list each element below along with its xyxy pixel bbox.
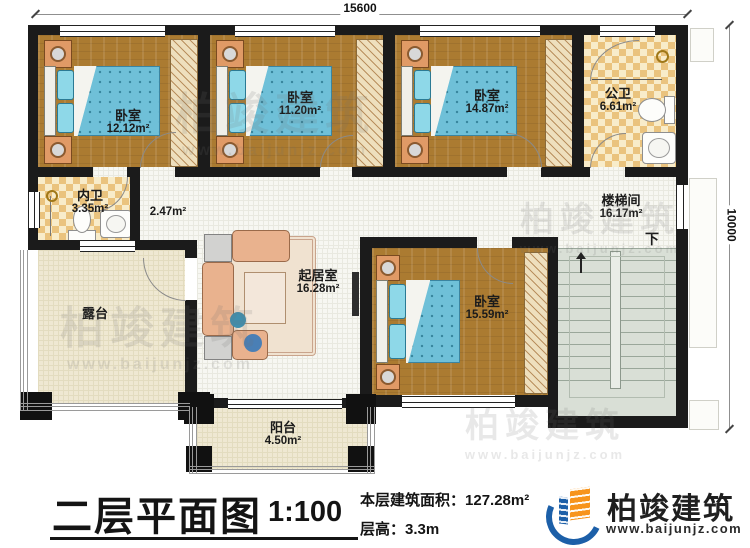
room-area: 6.61m² [600,101,636,115]
bed [376,280,460,363]
room-name: 阳台 [265,420,301,435]
nightstand [376,364,400,390]
towel-pole [50,196,51,236]
wardrobe [524,252,548,394]
wall-segment [352,167,507,177]
coffee-table [244,272,286,324]
window [235,25,335,37]
bed-pillow [57,70,74,100]
bed-sheet [406,280,430,363]
wall-segment [515,395,558,407]
stairs-down-label: 下 [645,229,659,249]
room-area: 15.59m² [466,309,509,323]
stair-arrow-head [576,252,586,259]
room-area: 3.35m² [72,203,108,217]
wall-segment [383,25,395,177]
nightstand [376,255,400,281]
room-name: 卧室 [279,90,321,105]
nightstand [44,136,72,164]
bed-sheet [74,66,98,136]
wall-segment [572,25,584,173]
exterior-box [690,28,714,62]
room-name: 公卫 [600,86,636,101]
room-area: 2.47m² [150,206,186,220]
nightstand [44,40,72,68]
wardrobe [356,39,384,167]
room-label-bedroom1: 卧室 12.12m² [107,108,150,137]
watermark-url: www.baijunjz.com [465,447,625,462]
wall-segment [127,167,140,177]
wall-segment [335,25,420,35]
wall-segment [360,237,477,248]
room-area: 16.28m² [297,283,340,297]
room-area: 12.12m² [107,123,150,137]
room-name: 内卫 [72,188,108,203]
wall-segment [130,177,140,245]
window [402,396,515,408]
plant [244,334,262,352]
toilet-bowl [638,98,666,122]
room-label-bedroom2: 卧室 11.20m² [279,90,321,119]
plan-scale: 1:100 [268,496,342,529]
wall-segment [540,25,600,35]
terrace-railing [20,403,190,411]
room-label-terrace: 露台 [82,306,108,321]
bed-headboard [44,66,56,136]
nightstand [401,40,429,68]
floor-area-line: 本层建筑面积：127.28m² [360,489,529,510]
sofa [202,262,234,336]
tv [352,272,359,316]
stair-walkline [569,256,665,398]
bed-pillow [414,70,431,100]
terrace-railing [20,250,28,411]
wall-segment [198,25,210,177]
window [28,192,40,228]
wall-segment [28,240,80,250]
floor-height-label: 层高： [360,521,405,538]
balcony-railing [367,407,375,473]
nightstand [216,136,244,164]
wall-segment [28,167,93,177]
room-label-inner-bath: 内卫 3.35m² [72,188,108,217]
window [60,25,165,37]
floor-height-value: 3.3m [405,521,439,538]
window [420,25,540,37]
room-label-stairwell: 楼梯间 16.17m² [600,193,643,222]
towel-rail [592,79,662,80]
room-label-living: 起居室 16.28m² [297,268,340,297]
room-label-public-bath: 公卫 6.61m² [600,86,636,115]
side-table [204,336,232,360]
plant [230,312,246,328]
room-area: 11.20m² [279,105,321,119]
floor-height-line: 层高：3.3m [360,518,439,539]
dimension-tick [725,424,734,433]
room-name: 露台 [82,306,108,321]
wall-segment [175,167,320,177]
logo-building-orange [570,487,590,521]
bed-pillow [229,70,246,100]
floor-area-label: 本层建筑面积： [360,492,465,509]
company-url: www.baijunjz.com [606,521,742,536]
room-label-hall: 2.47m² [150,206,186,220]
room-label-balcony: 阳台 4.50m² [265,420,301,449]
logo-building-blue [559,497,568,525]
bed-pillow [389,324,406,359]
window [600,25,655,37]
wall-segment [185,240,197,258]
nightstand [401,136,429,164]
bed-sheet [431,66,455,136]
bed-headboard [376,280,388,363]
room-area: 14.87m² [466,103,509,117]
bed-headboard [216,66,228,136]
dimension-height: 10000 [725,205,739,244]
towel-ring [46,190,58,202]
floor-area-value: 127.28m² [465,492,529,509]
bed-pillow [389,284,406,319]
bed-pillow [229,103,246,133]
dimension-width: 15600 [340,1,379,15]
window [676,185,690,229]
stair-direction-arrow [580,258,582,273]
sink-basin [648,138,670,158]
bed-sheet [246,66,270,136]
room-name: 卧室 [107,108,150,123]
wall-segment [541,167,590,177]
room-name: 楼梯间 [600,193,643,208]
side-table [204,234,232,262]
room-label-bedroom3: 卧室 14.87m² [466,88,509,117]
bed-headboard [401,66,413,136]
room-name: 卧室 [466,294,509,309]
floor-plan-sheet: 卧室 12.12m² 卧室 11.20m² 卧室 14.87m² 公卫 6.61… [0,0,750,548]
bed-pillow [414,103,431,133]
exterior-box [689,400,719,430]
exterior-box [689,178,717,348]
dimension-tick [683,9,692,18]
room-name: 卧室 [466,88,509,103]
sofa [232,230,290,262]
wall-segment [360,248,372,398]
room-area: 4.50m² [265,435,301,449]
room-name: 起居室 [297,268,340,283]
balcony-railing [189,407,197,473]
sink-basin [106,215,126,233]
room-label-bedroom4: 卧室 15.59m² [466,294,509,323]
room-area: 16.17m² [600,208,643,222]
wardrobe [545,39,573,167]
balcony-sliding-door [228,399,342,409]
wall-segment [548,416,688,428]
staircase [558,248,676,416]
towel-ring [656,50,669,63]
bed-pillow [57,103,74,133]
company-logo-icon [546,485,604,541]
plan-title: 二层平面图 [52,484,262,542]
nightstand [216,40,244,68]
wall-segment [625,167,676,177]
balcony-railing [189,466,375,474]
title-underline [50,537,358,540]
wall-segment [135,240,190,250]
window [80,240,135,252]
